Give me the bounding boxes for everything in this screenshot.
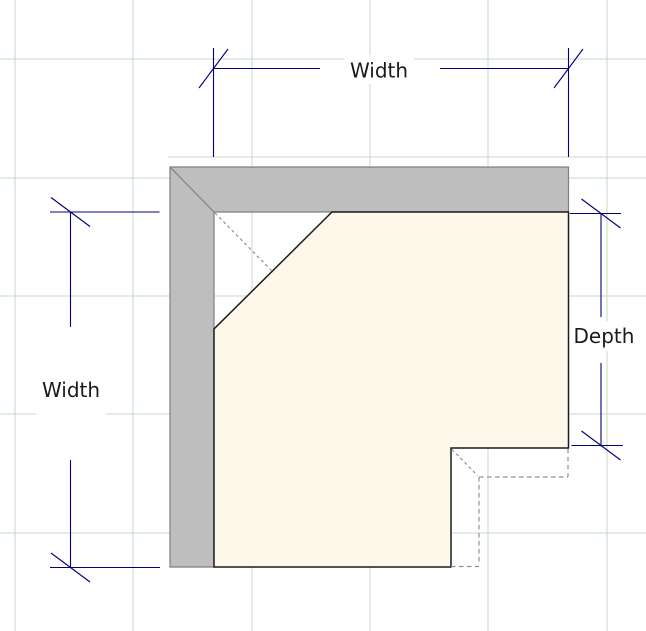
left-width-dimension[interactable]: Width bbox=[36, 198, 160, 583]
top-width-dimension[interactable]: Width bbox=[199, 48, 583, 157]
corner-dashed-diagonal bbox=[215, 213, 272, 271]
left-width-dimension-label[interactable]: Width bbox=[42, 378, 100, 402]
right-depth-dimension-label[interactable]: Depth bbox=[574, 324, 635, 348]
drawing-canvas[interactable]: Width Width Depth bbox=[0, 0, 646, 631]
notch-dashed-diagonal bbox=[452, 450, 478, 476]
page: Width Width Depth bbox=[0, 0, 646, 631]
right-depth-dimension[interactable]: Depth bbox=[570, 199, 639, 460]
top-width-dimension-label[interactable]: Width bbox=[350, 59, 408, 83]
